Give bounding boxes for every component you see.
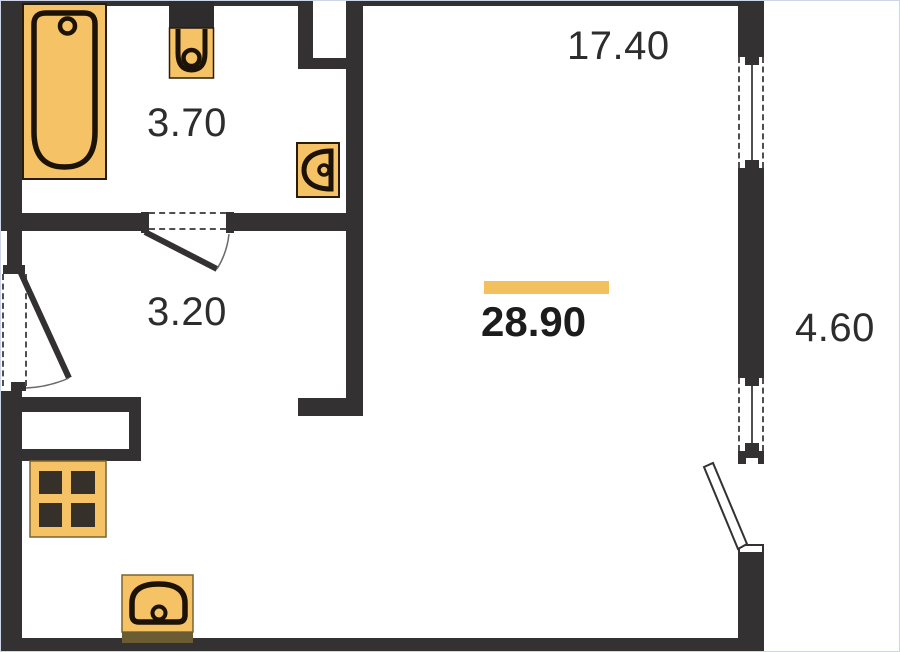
entrance-door-cap-top xyxy=(3,265,25,274)
stove-icon xyxy=(30,461,106,537)
bathroom-doorway-dash xyxy=(149,212,226,214)
wall-central xyxy=(346,1,363,416)
window-pane xyxy=(751,64,753,161)
wall-hallway-bottom xyxy=(1,397,141,412)
cap-notch xyxy=(746,458,758,464)
window-nub xyxy=(745,443,759,451)
wall-left-door-jamb xyxy=(7,231,22,269)
entrance-doorway-dash xyxy=(2,274,4,386)
bathroom-doorway-dash xyxy=(149,228,226,230)
main-room-area-label: 28.90 xyxy=(481,301,586,343)
wall-bottom xyxy=(1,638,764,652)
bathtub-icon xyxy=(23,4,106,179)
entrance-door-cap-bottom xyxy=(11,382,26,391)
kitchen-sink-icon xyxy=(122,575,193,643)
wall-bathroom-right xyxy=(234,213,363,231)
toilet-icon xyxy=(169,1,214,78)
wall-right-top xyxy=(738,1,764,59)
wall-left-upper xyxy=(1,1,22,231)
wall-top-left xyxy=(1,1,313,6)
balcony-area-label: 4.60 xyxy=(795,308,875,348)
shaft-wall-horizontal xyxy=(298,58,346,69)
window-icon xyxy=(738,57,764,168)
bathroom-door-post-right xyxy=(226,212,234,233)
wall-right-bottom xyxy=(738,553,764,652)
balcony-door-icon xyxy=(704,463,747,549)
bathroom-door-post-left xyxy=(141,212,149,233)
window-pane xyxy=(751,385,753,444)
door-leaf-icon xyxy=(145,232,229,269)
window-nub xyxy=(745,160,759,168)
window-icon xyxy=(738,378,764,451)
upper-area-label: 17.40 xyxy=(567,26,670,66)
wall-top-right xyxy=(346,1,764,6)
floorplan: 3.70 17.40 3.20 28.90 4.60 xyxy=(0,0,900,652)
main-room-highlight-bar xyxy=(484,281,609,294)
hallway-area-label: 3.20 xyxy=(147,292,227,332)
bathroom-area-label: 3.70 xyxy=(147,103,227,143)
duct-wall-bottom xyxy=(21,449,141,461)
window-nub xyxy=(745,57,759,65)
washbasin-icon xyxy=(297,143,339,197)
wall-left-lower xyxy=(1,391,22,652)
fixtures-layer xyxy=(1,1,900,652)
window-nub xyxy=(745,378,759,386)
wall-central-stub xyxy=(298,398,363,416)
door-leaf-icon xyxy=(20,271,69,388)
wall-bathroom-left xyxy=(1,213,141,231)
wall-right-middle xyxy=(738,166,764,381)
entrance-doorway-dash xyxy=(25,274,27,386)
